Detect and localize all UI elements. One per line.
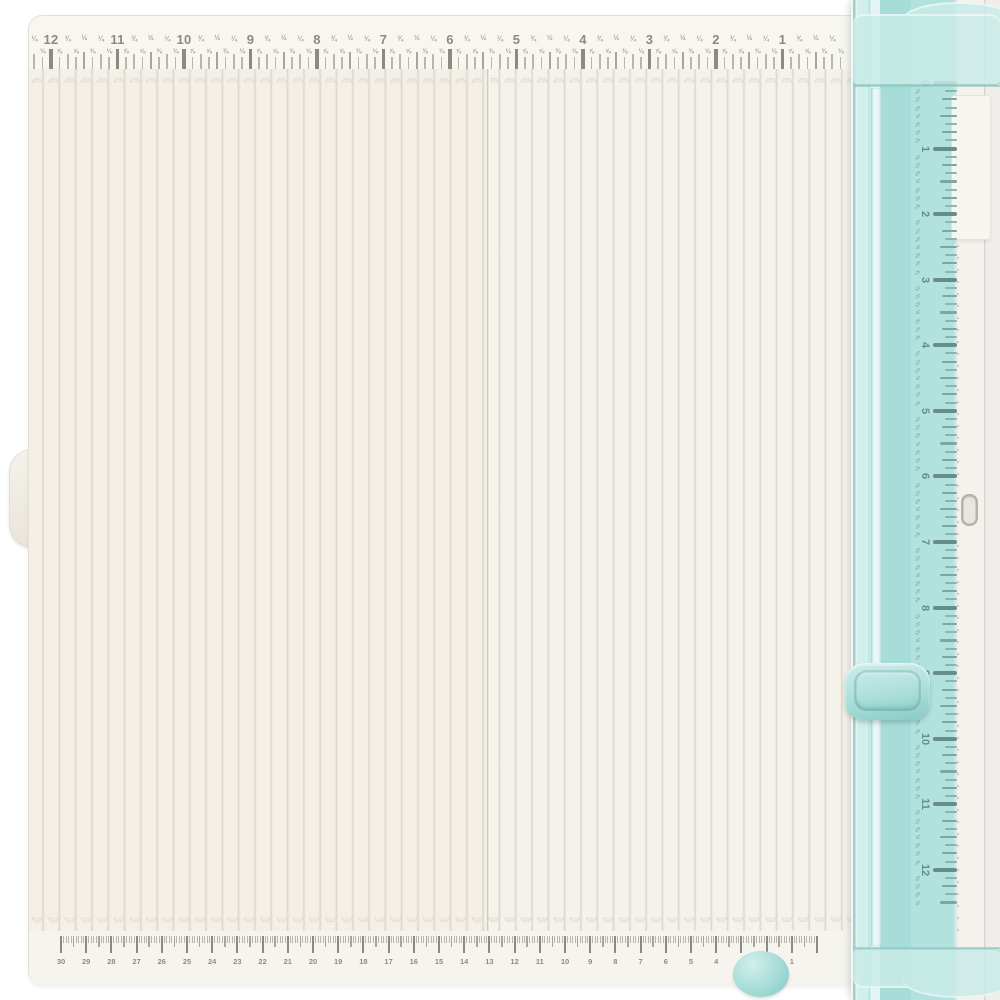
fraction-label: ⅞	[914, 204, 920, 209]
mm-tick	[234, 936, 235, 943]
fraction-label: ⅜	[914, 171, 920, 176]
inch-dash	[933, 343, 957, 347]
cm-number: 30	[57, 957, 65, 966]
mm-tick	[567, 936, 568, 943]
eighth-inch-tick	[790, 57, 792, 69]
quarter-inch-dash	[942, 492, 957, 494]
mm-tick	[529, 936, 530, 943]
half-inch-tick	[482, 52, 484, 69]
mm-tick	[134, 936, 135, 943]
fraction-label: ¾	[264, 36, 270, 43]
fraction-label: ⅞	[914, 335, 920, 340]
fraction-label: ¾	[914, 392, 920, 397]
mm-tick	[570, 936, 571, 943]
mm-tick	[204, 936, 205, 943]
mm-tick	[764, 936, 765, 943]
eighth-inch-dash	[945, 451, 958, 453]
fraction-label: ¼	[829, 36, 835, 43]
mm-tick	[441, 936, 442, 943]
quarter-inch-tick	[432, 54, 434, 69]
cm-tick	[614, 936, 616, 953]
eighth-inch-dash	[945, 533, 958, 535]
mm-tick	[88, 936, 89, 943]
cm-number: 29	[82, 957, 90, 966]
eighth-inch-dash	[945, 549, 958, 551]
fraction-label: ⅝	[914, 646, 920, 651]
fraction-label: ¾	[914, 458, 920, 463]
mm-tick	[771, 936, 772, 943]
inch-dash	[933, 278, 957, 282]
fraction-label: ⅛	[914, 417, 920, 422]
mm-tick	[622, 936, 623, 943]
mm-tick	[267, 936, 268, 943]
mm-tick	[562, 936, 563, 943]
fraction-label: ⅝	[406, 48, 411, 55]
mm-tick	[408, 936, 409, 943]
eighth-inch-tick	[757, 57, 759, 69]
eighth-inch-dash	[945, 369, 958, 371]
fraction-label: ⅜	[914, 302, 920, 307]
mm-tick	[612, 936, 613, 943]
fraction-label: ⅝	[914, 253, 920, 258]
mm-tick	[358, 936, 359, 943]
cm-tick	[161, 936, 163, 953]
cm-tick	[640, 936, 642, 953]
eighth-inch-tick	[225, 57, 227, 69]
mm-tick	[423, 936, 424, 943]
eighth-inch-tick	[441, 57, 443, 69]
mm-tick	[522, 936, 523, 943]
cm-tick	[539, 936, 541, 953]
fraction-label: ¼	[914, 556, 920, 561]
eighth-inch-dash	[945, 205, 958, 207]
fraction-label: ⅝	[914, 777, 920, 782]
fraction-label: ⅞	[589, 48, 594, 55]
fraction-label: ¾	[65, 36, 71, 43]
fraction-label: ⅜	[489, 48, 494, 55]
fraction-label: ¾	[796, 36, 802, 43]
half-inch-dash	[940, 180, 957, 183]
half-cm-tick	[375, 936, 377, 947]
fraction-label: ¾	[131, 36, 137, 43]
eighth-inch-dash	[945, 664, 958, 666]
mm-tick	[814, 936, 815, 943]
trimmer-rail: 0⅛¼⅜½⅝¾⅞1⅛¼⅜½⅝¾⅞2⅛¼⅜½⅝¾⅞3⅛¼⅜½⅝¾⅞4⅛¼⅜½⅝¾⅞…	[851, 0, 1000, 1000]
mm-tick	[318, 936, 319, 943]
eighth-inch-dash	[945, 844, 958, 846]
fraction-label: ¼	[31, 36, 37, 43]
fraction-label: ⅜	[356, 48, 361, 55]
eighth-inch-dash	[945, 254, 958, 256]
eighth-inch-dash	[945, 631, 958, 633]
blade-slider-knob[interactable]	[845, 663, 930, 720]
mm-tick	[406, 936, 407, 943]
mm-tick	[469, 936, 470, 943]
mm-tick	[181, 936, 182, 943]
mm-tick	[620, 936, 621, 943]
eighth-inch-dash	[945, 189, 958, 191]
fraction-label: ¾	[914, 654, 920, 659]
fraction-label: ⅝	[914, 384, 920, 389]
fraction-label: ⅝	[472, 48, 477, 55]
fraction-label: ¾	[914, 195, 920, 200]
eighth-inch-dash	[945, 861, 958, 863]
quarter-inch-tick	[466, 54, 468, 69]
eighth-inch-tick	[75, 57, 77, 69]
mm-tick	[474, 936, 475, 943]
half-cm-tick	[426, 936, 428, 947]
mm-tick	[229, 936, 230, 943]
fraction-label: ⅝	[914, 187, 920, 192]
half-cm-tick	[501, 936, 503, 947]
quarter-inch-dash	[942, 721, 957, 723]
fraction-label: ½	[613, 35, 619, 42]
quarter-inch-tick	[765, 54, 767, 69]
fraction-label: ½	[914, 900, 920, 905]
cm-number: 13	[485, 957, 493, 966]
quarter-inch-tick	[233, 54, 235, 69]
mm-tick	[214, 936, 215, 943]
inch-tick	[648, 49, 651, 69]
fraction-label: ⅜	[914, 892, 920, 897]
eighth-inch-dash	[945, 746, 958, 748]
mm-tick	[365, 936, 366, 943]
half-cm-tick	[804, 936, 806, 947]
half-inch-dash	[940, 639, 957, 642]
mm-tick	[499, 936, 500, 943]
eighth-inch-dash	[945, 582, 958, 584]
fraction-label: ¼	[914, 818, 920, 823]
cm-tick	[816, 936, 818, 953]
eighth-inch-dash	[945, 434, 958, 436]
fraction-label: ⅝	[805, 48, 810, 55]
inch-number: 2	[712, 32, 720, 47]
mm-tick	[63, 936, 64, 943]
mm-tick	[698, 936, 699, 943]
cm-number: 7	[639, 957, 643, 966]
half-cm-tick	[123, 936, 125, 947]
cm-tick	[514, 936, 516, 953]
mm-tick	[333, 936, 334, 943]
mm-tick	[799, 936, 800, 943]
mm-tick	[146, 936, 147, 943]
mm-tick	[625, 936, 626, 943]
eighth-inch-dash	[945, 385, 958, 387]
fraction-label: ⅛	[914, 482, 920, 487]
mm-tick	[610, 936, 611, 943]
fraction-label: ⅝	[273, 48, 278, 55]
fraction-label: ⅛	[771, 48, 776, 55]
eighth-inch-tick	[374, 57, 376, 69]
mm-tick	[295, 936, 296, 943]
half-cm-tick	[148, 936, 150, 947]
fraction-label: ⅞	[522, 48, 527, 55]
mm-tick	[416, 936, 417, 943]
inch-tick	[315, 49, 318, 69]
mm-tick	[607, 936, 608, 943]
mm-tick	[781, 936, 782, 943]
eighth-inch-dash	[945, 779, 958, 781]
cm-number: 26	[158, 957, 166, 966]
blade-slider-knob-face	[854, 670, 921, 711]
fraction-label: ⅝	[140, 48, 145, 55]
mm-tick	[116, 936, 117, 943]
half-inch-dash	[940, 770, 957, 773]
half-cm-tick	[174, 936, 176, 947]
half-cm-tick	[199, 936, 201, 947]
quarter-inch-dash	[942, 525, 957, 527]
eighth-inch-tick	[574, 57, 576, 69]
fraction-label: ⅞	[788, 48, 793, 55]
quarter-inch-dash	[942, 164, 957, 166]
eighth-inch-tick	[92, 57, 94, 69]
mm-tick	[368, 936, 369, 943]
half-inch-dash	[940, 311, 957, 314]
inch-dash	[933, 671, 957, 675]
eighth-inch-tick	[59, 57, 61, 69]
half-cm-tick	[602, 936, 604, 947]
quarter-inch-tick	[831, 54, 833, 69]
fraction-label: ⅞	[914, 138, 920, 143]
quarter-inch-dash	[942, 361, 957, 363]
fraction-label: ¼	[563, 36, 569, 43]
mm-tick	[446, 936, 447, 943]
quarter-inch-dash	[942, 98, 957, 100]
eighth-inch-tick	[541, 57, 543, 69]
fraction-label: ⅞	[722, 48, 727, 55]
mm-tick	[285, 936, 286, 943]
mm-tick	[668, 936, 669, 943]
mm-tick	[176, 936, 177, 943]
fraction-label: ⅜	[555, 48, 560, 55]
rail-top-cap	[851, 0, 1000, 90]
half-cm-tick	[627, 936, 629, 947]
fraction-label: ¼	[630, 36, 636, 43]
inch-number: 12	[43, 32, 58, 47]
product-photo: ¼⅛12⅞¾⅝½⅜¼⅛11⅞¾⅝½⅜¼⅛10⅞¾⅝½⅜¼⅛9⅞¾⅝½⅜¼⅛8⅞¾…	[0, 0, 1000, 1000]
cm-number: 25	[183, 957, 191, 966]
mm-tick	[796, 936, 797, 943]
eighth-inch-dash	[945, 303, 958, 305]
half-cm-tick	[678, 936, 680, 947]
fraction-label: ⅜	[914, 433, 920, 438]
fraction-label: ⅞	[57, 48, 62, 55]
board-center-seam	[487, 69, 490, 931]
mm-tick	[78, 936, 79, 943]
quarter-inch-dash	[942, 623, 957, 625]
half-inch-tick	[349, 52, 351, 69]
half-inch-dash	[940, 574, 957, 577]
cm-number: 22	[258, 957, 266, 966]
fraction-label: ⅞	[655, 48, 660, 55]
fraction-label: ½	[813, 35, 819, 42]
mm-tick	[756, 936, 757, 943]
mm-tick	[108, 936, 109, 943]
eighth-inch-tick	[690, 57, 692, 69]
mm-tick	[670, 936, 671, 943]
fraction-label: ¼	[914, 491, 920, 496]
fraction-label: ½	[347, 35, 353, 42]
fraction-label: ⅞	[123, 48, 128, 55]
mm-tick	[685, 936, 686, 943]
mm-tick	[532, 936, 533, 943]
eighth-inch-dash	[945, 713, 958, 715]
eighth-inch-tick	[241, 57, 243, 69]
fraction-label: ⅜	[914, 499, 920, 504]
mm-tick	[227, 936, 228, 943]
eighth-inch-tick	[807, 57, 809, 69]
mm-tick	[169, 936, 170, 943]
eighth-inch-dash	[945, 123, 958, 125]
eighth-inch-tick	[640, 57, 642, 69]
mm-tick	[491, 936, 492, 943]
mm-tick	[159, 936, 160, 943]
eighth-inch-dash	[945, 566, 958, 568]
half-cm-tick	[274, 936, 276, 947]
quarter-inch-dash	[942, 557, 957, 559]
fraction-label: ½	[547, 35, 553, 42]
eighth-inch-dash	[945, 484, 958, 486]
quarter-inch-dash	[942, 230, 957, 232]
mm-tick	[643, 936, 644, 943]
fraction-label: ¾	[464, 36, 470, 43]
mm-tick	[335, 936, 336, 943]
fraction-label: ½	[914, 441, 920, 446]
cm-number: 9	[588, 957, 592, 966]
mm-tick	[355, 936, 356, 943]
fraction-label: ⅛	[838, 48, 843, 55]
fraction-label: ⅞	[323, 48, 328, 55]
mm-tick	[504, 936, 505, 943]
mm-tick	[811, 936, 812, 943]
mm-tick	[748, 936, 749, 943]
inch-tick	[182, 49, 185, 69]
cm-tick	[312, 936, 314, 953]
mm-tick	[484, 936, 485, 943]
fraction-label: ¾	[914, 327, 920, 332]
eighth-inch-dash	[945, 598, 958, 600]
fraction-label: ⅝	[738, 48, 743, 55]
half-inch-dash	[940, 901, 957, 904]
mm-tick	[776, 936, 777, 943]
fraction-label: ⅜	[688, 48, 693, 55]
inch-dash	[933, 212, 957, 216]
mm-tick	[507, 936, 508, 943]
cm-number: 6	[664, 957, 668, 966]
eighth-inch-tick	[391, 57, 393, 69]
mm-tick	[151, 936, 152, 943]
mm-tick	[428, 936, 429, 943]
eighth-inch-dash	[945, 811, 958, 813]
cm-number: 15	[435, 957, 443, 966]
eighth-inch-dash	[945, 500, 958, 502]
quarter-inch-tick	[67, 54, 69, 69]
half-cm-tick	[728, 936, 730, 947]
mm-tick	[738, 936, 739, 943]
fraction-label: ⅝	[339, 48, 344, 55]
fraction-label: ⅛	[439, 48, 444, 55]
fraction-label: ⅜	[914, 630, 920, 635]
cm-tick	[463, 936, 465, 953]
mm-tick	[658, 936, 659, 943]
quarter-inch-dash	[942, 459, 957, 461]
scoring-groove-field	[29, 69, 858, 931]
eighth-inch-dash	[945, 877, 958, 879]
cm-tick	[715, 936, 717, 953]
rail-bottom-seam	[853, 947, 1000, 949]
quarter-inch-tick	[632, 54, 634, 69]
mm-tick	[726, 936, 727, 943]
cm-number: 1	[790, 957, 794, 966]
mm-tick	[164, 936, 165, 943]
half-cm-tick	[350, 936, 352, 947]
mm-tick	[272, 936, 273, 943]
cm-number: 18	[359, 957, 367, 966]
mm-tick	[650, 936, 651, 943]
fraction-label: ¾	[397, 36, 403, 43]
mm-tick	[113, 936, 114, 943]
mm-tick	[265, 936, 266, 943]
mm-tick	[585, 936, 586, 943]
fraction-label: ⅞	[256, 48, 261, 55]
mm-tick	[809, 936, 810, 943]
eighth-inch-dash	[945, 221, 958, 223]
cm-tick	[211, 936, 213, 953]
half-cm-tick	[577, 936, 579, 947]
inch-number: 11	[110, 32, 124, 47]
mm-tick	[302, 936, 303, 943]
eighth-inch-dash	[945, 467, 958, 469]
fraction-label: ¼	[914, 294, 920, 299]
eighth-inch-tick	[740, 57, 742, 69]
cm-number: 5	[689, 957, 693, 966]
mm-tick	[129, 936, 130, 943]
inch-number: 2	[919, 211, 931, 217]
quarter-inch-tick	[665, 54, 667, 69]
mm-tick	[580, 936, 581, 943]
cm-tick	[413, 936, 415, 953]
mm-tick	[66, 936, 67, 943]
inch-number: 8	[313, 32, 321, 47]
mm-tick	[222, 936, 223, 943]
mm-tick	[731, 936, 732, 943]
cm-number: 19	[334, 957, 342, 966]
mm-tick	[252, 936, 253, 943]
quarter-inch-tick	[299, 54, 301, 69]
fraction-label: ½	[148, 35, 154, 42]
half-cm-tick	[325, 936, 327, 947]
mm-tick	[396, 936, 397, 943]
eighth-inch-tick	[674, 57, 676, 69]
mm-tick	[617, 936, 618, 943]
fraction-label: ½	[914, 179, 920, 184]
mm-tick	[718, 936, 719, 943]
mm-tick	[290, 936, 291, 943]
fraction-label: ½	[914, 507, 920, 512]
eighth-inch-dash	[945, 680, 958, 682]
eighth-inch-dash	[945, 893, 958, 895]
cm-number: 4	[714, 957, 718, 966]
fraction-label: ⅝	[914, 515, 920, 520]
mm-tick	[244, 936, 245, 943]
inch-tick	[515, 49, 518, 69]
fraction-label: ⅞	[190, 48, 195, 55]
mm-tick	[106, 936, 107, 943]
quarter-inch-tick	[499, 54, 501, 69]
mm-tick	[171, 936, 172, 943]
fraction-label: ⅝	[914, 843, 920, 848]
eighth-inch-tick	[341, 57, 343, 69]
